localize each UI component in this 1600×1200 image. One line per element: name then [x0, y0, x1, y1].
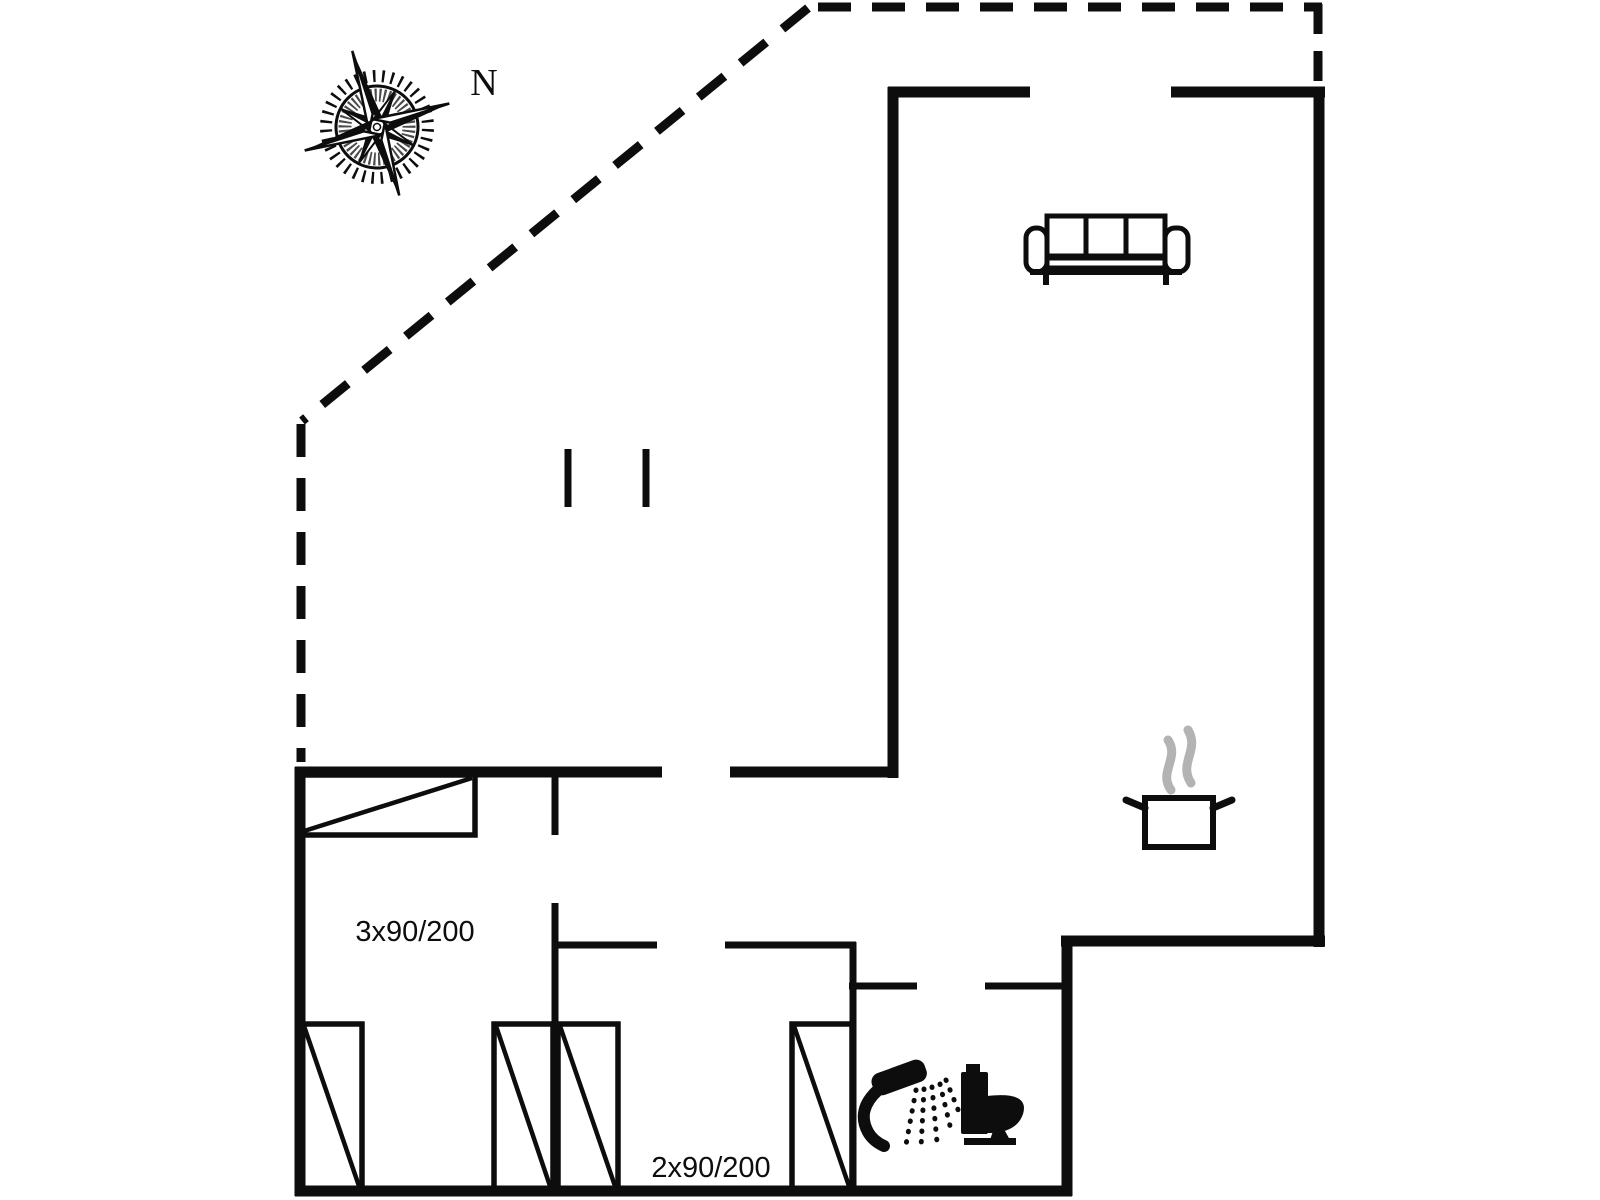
floor-plan-svg: N 3x90/200 2x90/200 — [0, 0, 1600, 1200]
floor-plan-canvas: N 3x90/200 2x90/200 — [0, 0, 1600, 1200]
bed-icon — [558, 1024, 618, 1191]
bed-icon — [792, 1024, 852, 1191]
north-label: N — [470, 62, 497, 104]
terrace-boundary — [301, 4, 1322, 762]
toilet-icon — [961, 1064, 1024, 1145]
shower-icon — [864, 1057, 959, 1150]
cooking-pot-icon — [1126, 798, 1232, 847]
bedroom2-bed-size-label: 2x90/200 — [651, 1152, 770, 1184]
bed-icon — [494, 1024, 553, 1191]
bedroom1-bed-size-label: 3x90/200 — [355, 916, 474, 948]
bed-icon — [298, 775, 475, 835]
terrace-boundary-diagonal — [302, 8, 808, 421]
beds — [298, 775, 852, 1191]
bed-icon — [302, 1024, 362, 1191]
entrance-marks — [568, 449, 646, 507]
steam-icon — [1167, 730, 1192, 790]
compass-rose-icon — [280, 27, 472, 219]
sofa-icon — [1026, 216, 1188, 285]
